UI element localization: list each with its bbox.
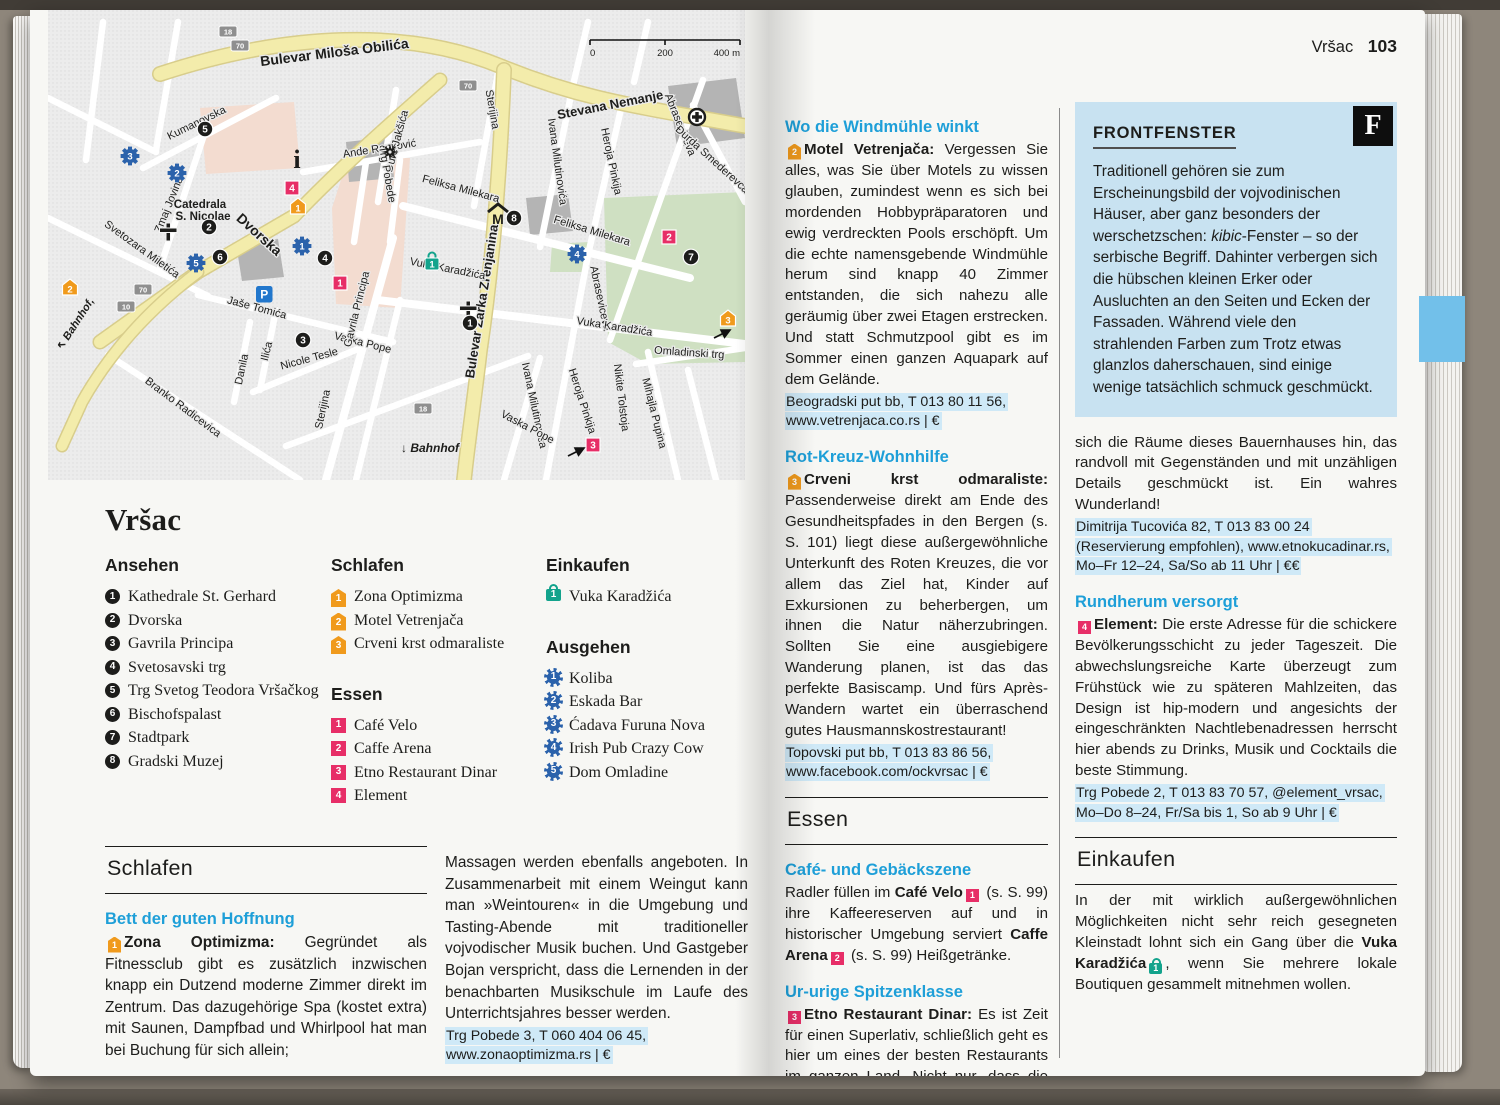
book-photo: 187070701018Bulevar Miloša ObilićaStevan…: [0, 0, 1500, 1105]
legend-item: 6Bischofspalast: [105, 703, 331, 727]
poi-badge-night-2: 2: [547, 694, 560, 707]
map-marker-number: 4: [322, 253, 328, 264]
article-paragraph: 3Crveni krst odmaraliste: Passenderweise…: [785, 470, 1048, 742]
article-heading: Wo die Windmühle winkt: [785, 118, 1048, 137]
article-heading: Ur-urige Spitzenklasse: [785, 983, 1048, 1002]
column-divider: [1059, 108, 1060, 1058]
poi-badge-sight-7: 7: [105, 730, 120, 745]
poi-badge-sight-6: 6: [105, 707, 120, 722]
map-marker-number: 2: [666, 232, 672, 243]
route-shield-number: 70: [464, 82, 472, 91]
page-edge-right: [1424, 14, 1462, 1072]
map-marker-number: 1: [337, 278, 343, 289]
map-marker-number: 4: [289, 183, 295, 194]
poi-badge-food-2: 2: [831, 952, 844, 965]
book-spread: 187070701018Bulevar Miloša ObilićaStevan…: [30, 10, 1425, 1076]
legend-item-label: Element: [354, 784, 407, 808]
map-marker-number: 3: [590, 440, 596, 451]
page-header-title: Vršac: [1312, 38, 1354, 56]
legend-item: 1Kathedrale St. Gerhard: [105, 585, 331, 609]
article-paragraph: 1Zona Optimizma: Gegründet als Fitnesscl…: [105, 932, 427, 1062]
info-box-letter: F: [1353, 106, 1393, 146]
left-article-col2: Massagen werden ebenfalls angeboten. In …: [445, 852, 748, 1076]
legend-item-label: Trg Svetog Teodora Vršačkog: [128, 679, 319, 703]
legend-header: Ansehen: [105, 555, 331, 576]
left-article-col1: SchlafenBett der guten Hoffnung1Zona Opt…: [105, 846, 427, 1062]
legend-item: 4Svetosavski trg: [105, 656, 331, 680]
legend-item: 2Motel Vetrenjača: [331, 609, 546, 633]
legend-item-label: Eskada Bar: [569, 690, 642, 714]
poi-badge-night-5: 5: [547, 765, 560, 778]
poi-badge-night-1: 1: [547, 671, 560, 684]
legend-item-label: Caffe Arena: [354, 737, 431, 761]
legend-section-einkaufen: Einkaufen1Vuka Karadžića: [546, 555, 753, 609]
legend-item-label: Vuka Karadžića: [569, 585, 672, 609]
background-bottom-band: [0, 1089, 1500, 1105]
poi-badge-sight-2: 2: [105, 613, 120, 628]
contact-highlight: Beogradski put bb, T 013 80 11 56, www.v…: [785, 393, 1008, 431]
poi-badge-hotel-3: 3: [788, 474, 801, 490]
article-paragraph: Massagen werden ebenfalls angeboten. In …: [445, 852, 748, 1025]
article-paragraph: Radler füllen im Café Velo1 (s. S. 99) i…: [785, 883, 1048, 967]
legend-header: Schlafen: [331, 555, 546, 576]
map-marker-number: 5: [193, 258, 199, 269]
info-icon: i: [293, 145, 300, 174]
street-label: ↓ Bahnhof: [401, 441, 460, 455]
contact-highlight: Topovski put bb, T 013 83 86 56, www.fac…: [785, 744, 993, 782]
poi-badge-hotel-2: 2: [788, 144, 801, 160]
street-label: Catedrala: [174, 199, 227, 211]
legend-item-label: Bischofspalast: [128, 703, 221, 727]
legend-item-label: Dom Omladine: [569, 761, 668, 785]
map-marker-number: 6: [217, 252, 223, 263]
article-paragraph: 3Etno Restaurant Dinar: Es ist Zeit für …: [785, 1005, 1048, 1076]
map-marker-number: 3: [300, 335, 306, 346]
contact-line: Trg Pobede 2, T 013 83 70 57, @element_v…: [1075, 784, 1397, 823]
legend-item-label: Kathedrale St. Gerhard: [128, 585, 276, 609]
parking-icon-letter: P: [260, 288, 268, 302]
church-icon-bar: [160, 228, 178, 233]
legend-item: 2Dvorska: [105, 609, 331, 633]
legend-item-label: Etno Restaurant Dinar: [354, 761, 497, 785]
map-marker-number: 2: [174, 168, 179, 179]
page-header: Vršac 103: [1075, 36, 1397, 57]
article-paragraph: 4Element: Die erste Adresse für die schi…: [1075, 615, 1397, 782]
legend-item: 3Gavrila Principa: [105, 632, 331, 656]
legend-item: 4Element: [331, 784, 546, 808]
city-map: 187070701018Bulevar Miloša ObilićaStevan…: [48, 10, 745, 480]
background-top-band: [0, 0, 1500, 10]
legend-item-label: Svetosavski trg: [128, 656, 226, 680]
poi-badge-food-4: 4: [1078, 621, 1091, 634]
map-scalebar-label: 400 m: [714, 48, 740, 59]
map-marker-number: 7: [688, 252, 694, 263]
legend-item: 4Irish Pub Crazy Cow: [546, 737, 753, 761]
contact-highlight: Trg Pobede 3, T 060 404 06 45, www.zonao…: [445, 1027, 648, 1065]
legend-item: 1Zona Optimizma: [331, 585, 546, 609]
legend-section-schlafen: Schlafen1Zona Optimizma2Motel Vetrenjača…: [331, 555, 546, 656]
poi-badge-sight-3: 3: [105, 636, 120, 651]
legend-header: Ausgehen: [546, 637, 753, 658]
article-paragraph: In der mit wirklich außergewöhnlichen Mö…: [1075, 891, 1397, 996]
route-shield-number: 70: [139, 286, 147, 295]
legend-section-essen: Essen1Café Velo2Caffe Arena3Etno Restaur…: [331, 684, 546, 808]
map-marker-number: 4: [574, 249, 580, 260]
poi-badge-shop-1: 1: [1149, 963, 1162, 974]
legend-item: 3Etno Restaurant Dinar: [331, 761, 546, 785]
legend-item-label: Café Velo: [354, 714, 417, 738]
map-marker-number: 3: [127, 151, 132, 162]
map-marker-number: 1: [467, 318, 473, 329]
page-title: Vršac: [105, 502, 181, 538]
legend-item: 5Trg Svetog Teodora Vršačkog: [105, 679, 331, 703]
legend-item-label: Ćadava Furuna Nova: [569, 714, 705, 738]
legend-section-ansehen: Ansehen1Kathedrale St. Gerhard2Dvorska3G…: [105, 555, 331, 773]
legend-item-label: Crveni krst odmaraliste: [354, 632, 504, 656]
legend-header: Essen: [331, 684, 546, 705]
map-marker-number: 3: [725, 315, 730, 326]
map-marker-number: 1: [429, 259, 435, 270]
section-title: Einkaufen: [1077, 847, 1395, 872]
map-scalebar-label: 0: [590, 48, 595, 59]
legend-item: 2Eskada Bar: [546, 690, 753, 714]
legend-item-label: Stadtpark: [128, 726, 189, 750]
legend-item: 1Koliba: [546, 667, 753, 691]
legend-item: 8Gradski Muzej: [105, 750, 331, 774]
map-scalebar-label: 200: [657, 48, 673, 59]
legend-item: 1Café Velo: [331, 714, 546, 738]
section-divider: Einkaufen: [1075, 837, 1397, 885]
article-heading: Café- und Gebäckszene: [785, 861, 1048, 880]
map-marker-number: 5: [202, 124, 208, 135]
legend-column-2: Schlafen1Zona Optimizma2Motel Vetrenjača…: [331, 555, 546, 808]
church-icon-bar: [460, 306, 478, 311]
route-shield-number: 10: [122, 303, 130, 312]
map-marker-number: 8: [511, 213, 517, 224]
route-shield-number: 18: [419, 405, 427, 414]
legend-item: 7Stadtpark: [105, 726, 331, 750]
route-shield-number: 18: [224, 28, 232, 37]
poi-badge-food-1: 1: [331, 718, 346, 733]
poi-badge-food-3: 3: [331, 765, 346, 780]
poi-badge-hotel-1: 1: [331, 589, 346, 607]
section-divider: Schlafen: [105, 846, 427, 894]
legend-item-label: Gavrila Principa: [128, 632, 233, 656]
legend-column-3: Einkaufen1Vuka KaradžićaAusgehen1Koliba2…: [546, 555, 753, 808]
article-heading: Rundherum versorgt: [1075, 593, 1397, 612]
museum-icon-letter: M: [492, 211, 504, 227]
legend-item: 3Ćadava Furuna Nova: [546, 714, 753, 738]
section-title: Essen: [787, 807, 1046, 832]
city-map-svg: 187070701018Bulevar Miloša ObilićaStevan…: [48, 10, 745, 480]
legend-item-label: Dvorska: [128, 609, 182, 633]
contact-line: Topovski put bb, T 013 83 86 56, www.fac…: [785, 744, 1048, 783]
poi-badge-food-1: 1: [966, 889, 979, 902]
right-article-col1: Wo die Windmühle winkt2Motel Vetrenjača:…: [785, 102, 1048, 1076]
info-box-text: Traditionell gehören sie zum Erscheinung…: [1093, 161, 1379, 399]
contact-line: Trg Pobede 3, T 060 404 06 45, www.zonao…: [445, 1027, 748, 1066]
legend-item: 1Vuka Karadžića: [546, 585, 753, 609]
contact-line: Dimitrija Tucovića 82, T 013 83 00 24 (R…: [1075, 518, 1397, 577]
contact-line: Beogradski put bb, T 013 80 11 56, www.v…: [785, 393, 1048, 432]
poi-badge-hotel-2: 2: [331, 613, 346, 631]
page-number: 103: [1368, 36, 1397, 56]
poi-badge-food-4: 4: [331, 788, 346, 803]
legend-section-ausgehen: Ausgehen1Koliba2Eskada Bar3Ćadava Furuna…: [546, 637, 753, 785]
contact-highlight: Trg Pobede 2, T 013 83 70 57, @element_v…: [1075, 784, 1385, 822]
map-marker-number: 1: [299, 241, 305, 252]
article-heading: Rot-Kreuz-Wohnhilfe: [785, 448, 1048, 467]
article-paragraph: 2Motel Vetrenjača: Vergessen Sie alles, …: [785, 140, 1048, 391]
hospital-icon-cross-bar: [692, 115, 702, 118]
legend-column-1: Ansehen1Kathedrale St. Gerhard2Dvorska3G…: [105, 555, 331, 808]
article-heading: Bett der guten Hoffnung: [105, 910, 427, 929]
route-shield-number: 70: [236, 42, 244, 51]
poi-badge-night-3: 3: [547, 718, 560, 731]
map-marker-number: 1: [295, 203, 301, 214]
poi-badge-food-3: 3: [788, 1011, 801, 1024]
info-box-title: FRONTFENSTER: [1093, 124, 1236, 149]
poi-badge-sight-1: 1: [105, 589, 120, 604]
contact-highlight: Dimitrija Tucovića 82, T 013 83 00 24 (R…: [1075, 518, 1392, 575]
legend-item-label: Gradski Muzej: [128, 750, 224, 774]
legend-item: 5Dom Omladine: [546, 761, 753, 785]
right-article-col2: FFRONTFENSTERTraditionell gehören sie zu…: [1075, 102, 1397, 996]
article-paragraph: sich die Räume dieses Bauernhauses hin, …: [1075, 433, 1397, 517]
poi-badge-sight-5: 5: [105, 683, 120, 698]
poi-badge-hotel-3: 3: [331, 636, 346, 654]
legend-item-label: Motel Vetrenjača: [354, 609, 463, 633]
poi-badge-sight-4: 4: [105, 660, 120, 675]
poi-badge-shop-1: 1: [546, 589, 561, 601]
map-legend: Ansehen1Kathedrale St. Gerhard2Dvorska3G…: [105, 555, 753, 808]
section-title: Schlafen: [107, 856, 425, 881]
section-divider: Essen: [785, 797, 1048, 845]
poi-badge-night-4: 4: [547, 741, 560, 754]
monument-icon-center: [388, 150, 391, 153]
legend-item: 2Caffe Arena: [331, 737, 546, 761]
legend-item-label: Koliba: [569, 667, 613, 691]
map-marker-number: 2: [67, 284, 72, 295]
bookmark-tab: [1419, 296, 1465, 362]
info-box: FFRONTFENSTERTraditionell gehören sie zu…: [1075, 102, 1397, 417]
poi-badge-hotel-1: 1: [108, 937, 121, 953]
legend-item-label: Irish Pub Crazy Cow: [569, 737, 704, 761]
legend-item: 3Crveni krst odmaraliste: [331, 632, 546, 656]
legend-header: Einkaufen: [546, 555, 753, 576]
map-marker-number: 2: [206, 222, 212, 233]
poi-badge-food-2: 2: [331, 741, 346, 756]
legend-item-label: Zona Optimizma: [354, 585, 463, 609]
poi-badge-sight-8: 8: [105, 754, 120, 769]
